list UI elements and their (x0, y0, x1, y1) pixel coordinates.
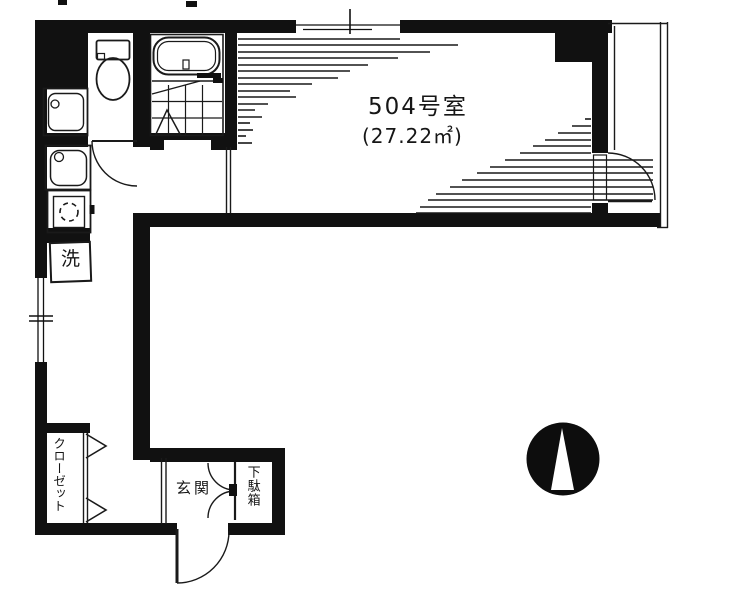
window-top-gap (296, 20, 400, 33)
entrance-label: 玄関 (176, 481, 212, 497)
pillar-top-right (555, 33, 592, 62)
wall-genkan-north (150, 448, 285, 462)
north-arrow-compass-icon (527, 423, 600, 496)
entrance-door-swing (177, 531, 229, 583)
washer-label: 洗 (61, 250, 80, 270)
wall-bottom-left (35, 523, 177, 535)
wall-top-right (400, 20, 612, 33)
wall-under-stove (35, 228, 90, 243)
stove-fixture (48, 191, 95, 233)
wall-bottom-right (228, 523, 285, 535)
scan-artifact (58, 0, 67, 5)
wall-mainroom-south (137, 213, 660, 227)
shoe-cabinet-label: 下駄箱 (245, 465, 259, 521)
wall-mainroom-west (225, 33, 237, 140)
floorplan-canvas: 504号室 (27.22㎡) 洗 クローゼット 玄関 下駄箱 (0, 0, 733, 589)
closet-fold-mark-upper (86, 434, 106, 458)
floorplan-drawing (0, 0, 733, 589)
toilet-door-swing (92, 141, 137, 186)
wall-corridor-east (133, 213, 150, 460)
closet-fold-mark-lower (86, 498, 106, 522)
toilet-fixture (97, 41, 130, 101)
bathtub-fixture (151, 35, 224, 136)
washbasin-fixture (44, 89, 88, 136)
wall-shoebox-east (272, 448, 285, 533)
room-number-label: 504号室 (368, 95, 468, 119)
kitchen-sink-fixture (46, 146, 91, 190)
closet-label: クローゼット (52, 437, 65, 523)
window-left-gap (35, 278, 47, 362)
wall-closet-north (35, 423, 90, 433)
pipe-shaft-block (35, 22, 88, 88)
wall-toilet-bath-divider (133, 33, 150, 147)
wall-right-upper (592, 20, 608, 153)
shoebox-door-handle (229, 484, 237, 496)
wall-left-lower (35, 362, 47, 535)
scan-artifact (186, 1, 197, 7)
bathroom-door-opening (164, 140, 211, 150)
room-area-label: (27.22㎡) (362, 126, 463, 147)
